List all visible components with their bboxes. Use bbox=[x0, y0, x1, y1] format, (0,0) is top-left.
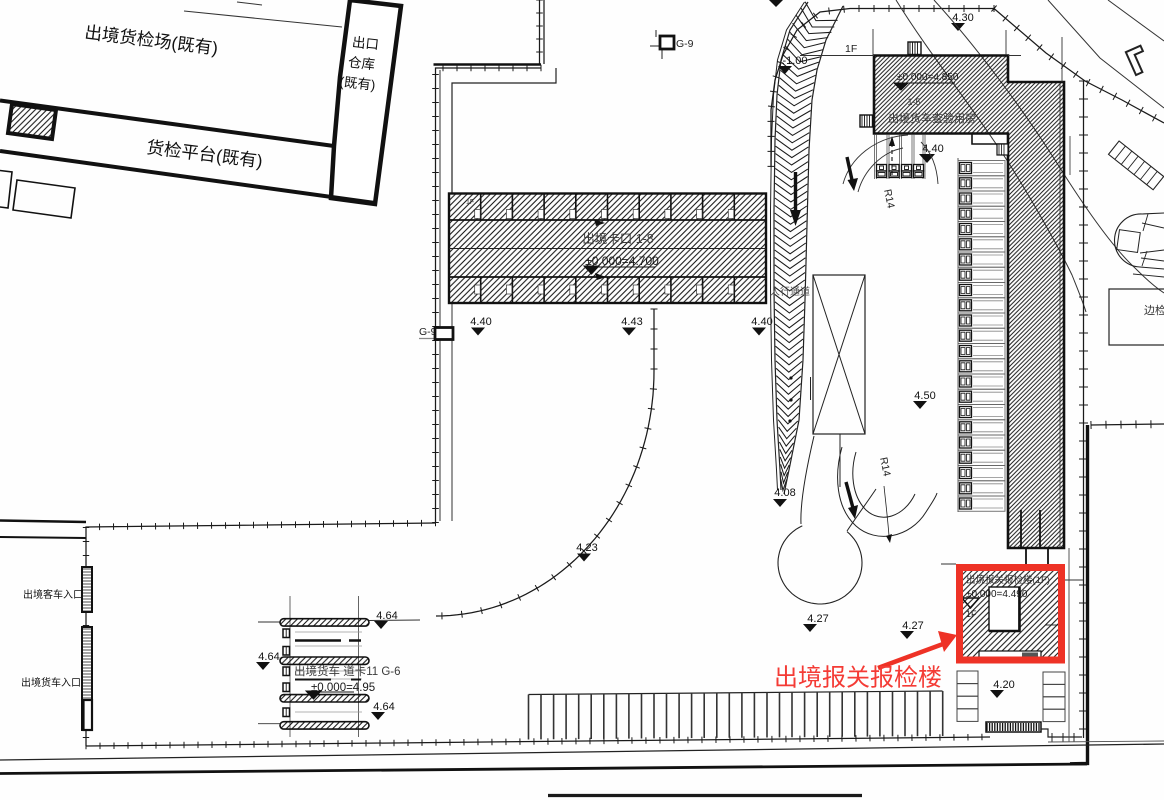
svg-text:4.40: 4.40 bbox=[751, 316, 772, 328]
svg-text:4.20: 4.20 bbox=[993, 679, 1014, 691]
svg-text:4.08: 4.08 bbox=[774, 487, 795, 499]
svg-text:4.27: 4.27 bbox=[807, 613, 828, 625]
svg-text:4.64: 4.64 bbox=[373, 701, 394, 713]
svg-text:出境货车 道卡11 G-6: 出境货车 道卡11 G-6 bbox=[294, 664, 401, 678]
svg-text:1F: 1F bbox=[466, 199, 474, 206]
svg-text:出境货检场(既有): 出境货检场(既有) bbox=[84, 22, 220, 58]
svg-text:1F: 1F bbox=[845, 43, 857, 55]
svg-text:出境报关报检楼(1F): 出境报关报检楼(1F) bbox=[966, 574, 1050, 586]
svg-text:边检: 边检 bbox=[1144, 303, 1164, 317]
svg-text:出境货车入口: 出境货车入口 bbox=[21, 676, 81, 689]
svg-text:货检平台(既有): 货检平台(既有) bbox=[146, 137, 264, 171]
svg-text:出境卡口 1-8: 出境卡口 1-8 bbox=[582, 231, 654, 246]
svg-text:±0.000=4.850: ±0.000=4.850 bbox=[897, 72, 959, 83]
svg-text:G-9: G-9 bbox=[676, 38, 694, 50]
svg-text:1-5: 1-5 bbox=[907, 97, 920, 107]
svg-text:4.64: 4.64 bbox=[376, 610, 397, 622]
svg-text:R14: R14 bbox=[881, 188, 897, 209]
svg-text:4.30: 4.30 bbox=[952, 12, 973, 24]
svg-text:出口: 出口 bbox=[351, 35, 379, 53]
svg-text:4.50: 4.50 bbox=[914, 390, 935, 402]
svg-text:4.40: 4.40 bbox=[470, 316, 491, 328]
svg-text:R14: R14 bbox=[877, 456, 893, 477]
svg-text:4.43: 4.43 bbox=[621, 316, 642, 328]
svg-text:人行通道: 人行通道 bbox=[770, 285, 810, 298]
svg-text:仓库: 仓库 bbox=[347, 55, 375, 73]
svg-text:出境报关报检楼: 出境报关报检楼 bbox=[774, 665, 942, 692]
svg-text:出境客车入口: 出境客车入口 bbox=[23, 588, 83, 601]
svg-text:出境货车查验用房: 出境货车查验用房 bbox=[888, 111, 976, 125]
svg-text:4.64: 4.64 bbox=[258, 651, 279, 663]
svg-text:-1.00: -1.00 bbox=[782, 55, 807, 67]
svg-text:1F: 1F bbox=[966, 609, 977, 619]
svg-text:4.27: 4.27 bbox=[902, 620, 923, 632]
svg-text:4.40: 4.40 bbox=[922, 143, 943, 155]
svg-text:4.23: 4.23 bbox=[576, 542, 597, 554]
